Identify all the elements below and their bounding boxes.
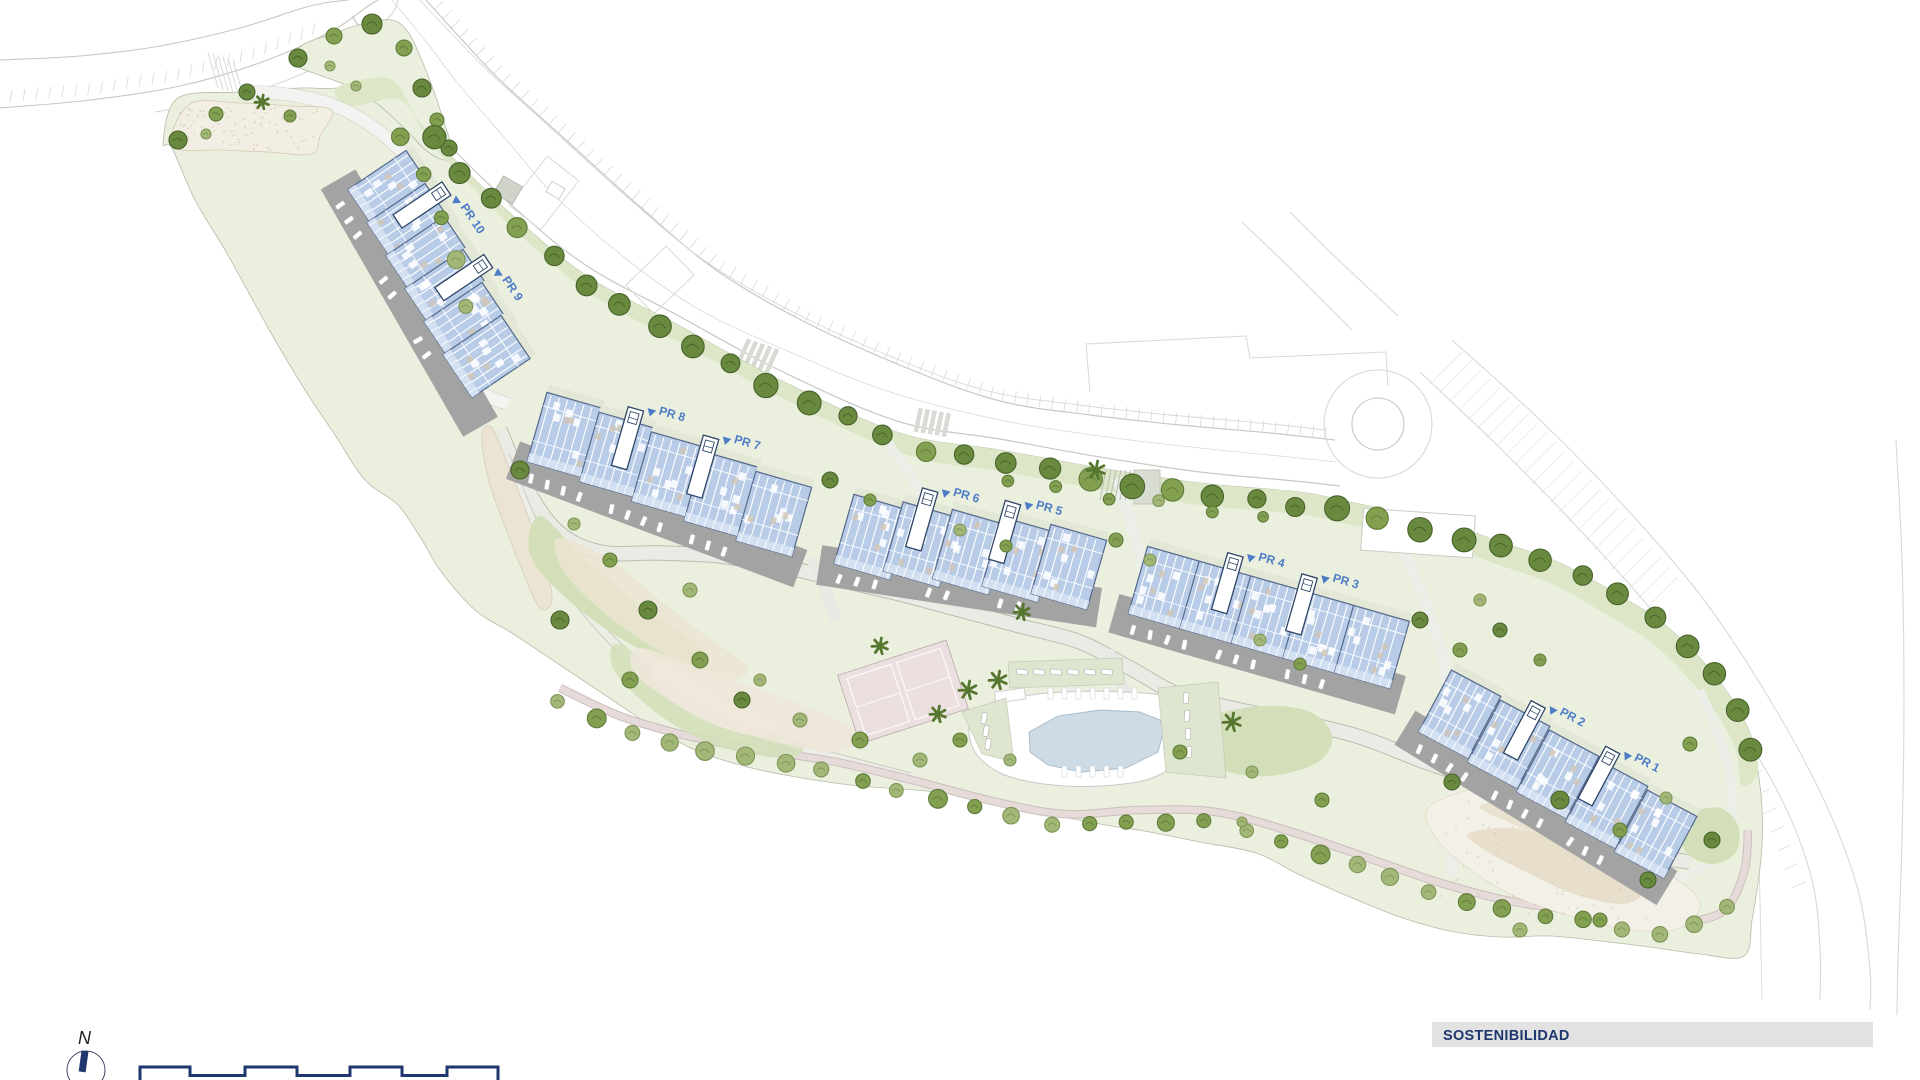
svg-text:SOSTENIBILIDAD: SOSTENIBILIDAD	[1443, 1028, 1570, 1044]
svg-text:N: N	[78, 1028, 92, 1048]
